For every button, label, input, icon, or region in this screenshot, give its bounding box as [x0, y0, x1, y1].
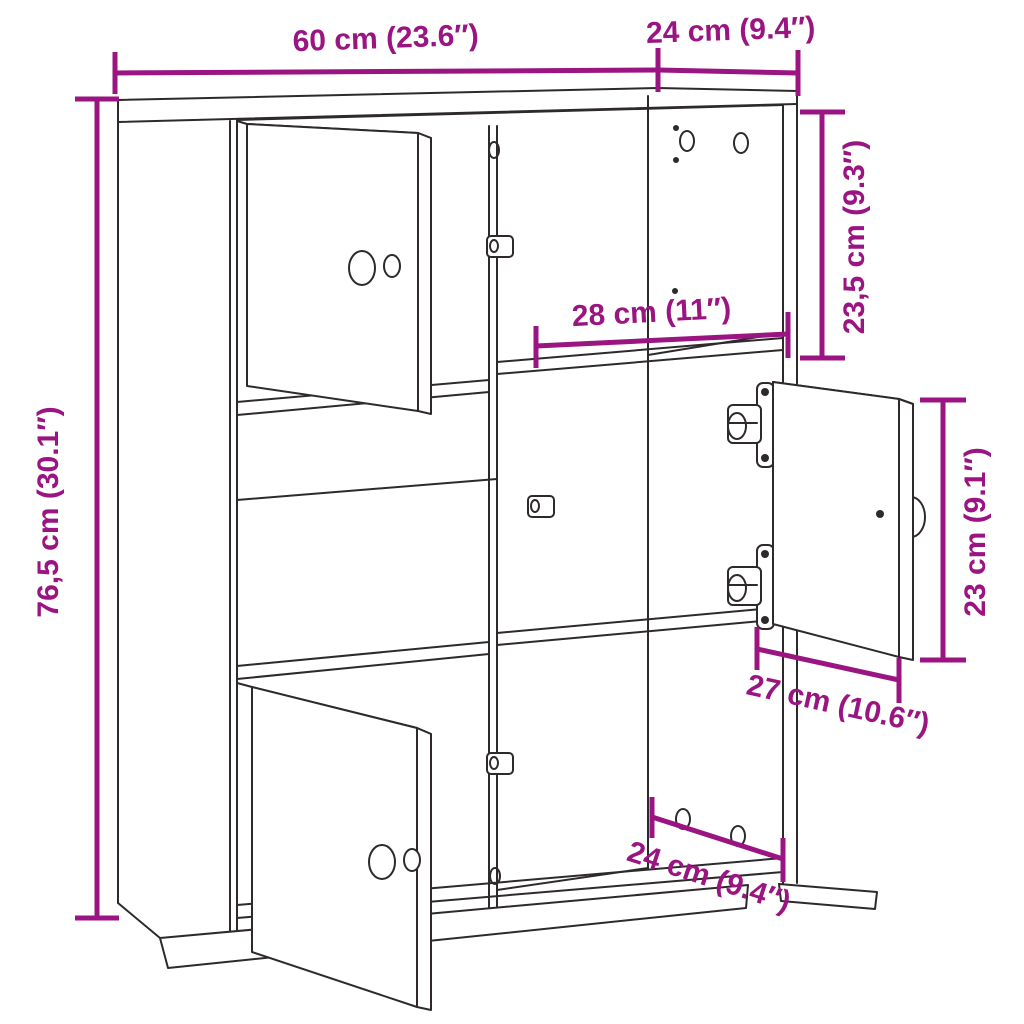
cabinet-verticals [118, 96, 797, 948]
magnetic-catch-icon [487, 753, 513, 774]
screw-dot [672, 288, 678, 294]
bottom-left-door [237, 683, 431, 1010]
dim-label: 60 cm (23.6″) [292, 19, 479, 58]
knob-screw-dot [876, 510, 884, 518]
door-knob-stem [384, 255, 400, 277]
plinth-left-slant [118, 903, 160, 938]
right-shelf1-front-edge [497, 350, 783, 374]
door-edge-face [899, 399, 913, 660]
door-hinges [728, 383, 774, 629]
pin-hole [734, 133, 748, 153]
hinge-screw [761, 550, 769, 558]
door-knob-icon [349, 251, 375, 285]
door-hinge-gap-line [237, 121, 247, 124]
dim-label: 76,5 cm (30.1″) [32, 406, 65, 617]
dim-label: 23 cm (9.1″) [959, 447, 992, 616]
middle-left-back-line [237, 479, 497, 500]
opening-top-edge [237, 105, 783, 120]
door-front-face [252, 687, 417, 1007]
right-shelf2-top-edge [497, 607, 783, 633]
middle-right-door [773, 382, 925, 660]
cabinet-top-panel [118, 88, 797, 122]
door-front-face [773, 382, 899, 657]
magnetic-catch-icon [487, 236, 513, 257]
door-knob-stem [404, 849, 420, 871]
pin-hole [680, 131, 694, 151]
top-panel-back-edge [118, 88, 797, 100]
hinge-icon [728, 545, 774, 629]
hinge-icon [728, 383, 774, 467]
dim-overall-width: 60 cm (23.6″) [115, 19, 658, 94]
dim-overall-height: 76,5 cm (30.1″) [32, 99, 119, 918]
left-shelf2-top-edge [237, 642, 489, 666]
dim-label: 28 cm (11″) [571, 292, 732, 333]
dim-line [115, 70, 658, 73]
cabinet-dimension-diagram: 60 cm (23.6″) 24 cm (9.4″) 76,5 cm (30.1… [0, 0, 1024, 1024]
dim-label: 24 cm (9.4″) [645, 11, 816, 50]
door-hinge-gap-line [237, 683, 252, 687]
dim-top-depth: 24 cm (9.4″) [645, 11, 816, 96]
left-shelf2-front-edge [237, 654, 489, 679]
dim-line [658, 70, 798, 73]
dim-label: 27 cm (10.6″) [744, 668, 933, 741]
plinth-front-face [160, 885, 748, 968]
dim-label: 23,5 cm (9.3″) [838, 140, 871, 334]
door-edge-face [418, 133, 431, 414]
dimension-diagram-page: 60 cm (23.6″) 24 cm (9.4″) 76,5 cm (30.1… [0, 0, 1024, 1024]
dim-top-compartment-height: 23,5 cm (9.3″) [800, 112, 871, 358]
magnetic-catch-icon [528, 496, 554, 517]
door-edge-face [417, 728, 431, 1010]
dim-door-height: 23 cm (9.1″) [920, 400, 992, 660]
pin-hole [490, 868, 500, 884]
screw-dot [673, 157, 679, 163]
right-shelf2-front-edge [497, 619, 783, 645]
dim-compartment-width: 28 cm (11″) [536, 292, 788, 368]
cabinet-drawing [118, 88, 925, 1010]
door-knob-icon [369, 845, 395, 879]
hinge-screw [761, 616, 769, 624]
hinge-screw [761, 454, 769, 462]
screw-dot [673, 125, 679, 131]
hinge-screw [761, 388, 769, 396]
top-left-door [237, 121, 431, 414]
